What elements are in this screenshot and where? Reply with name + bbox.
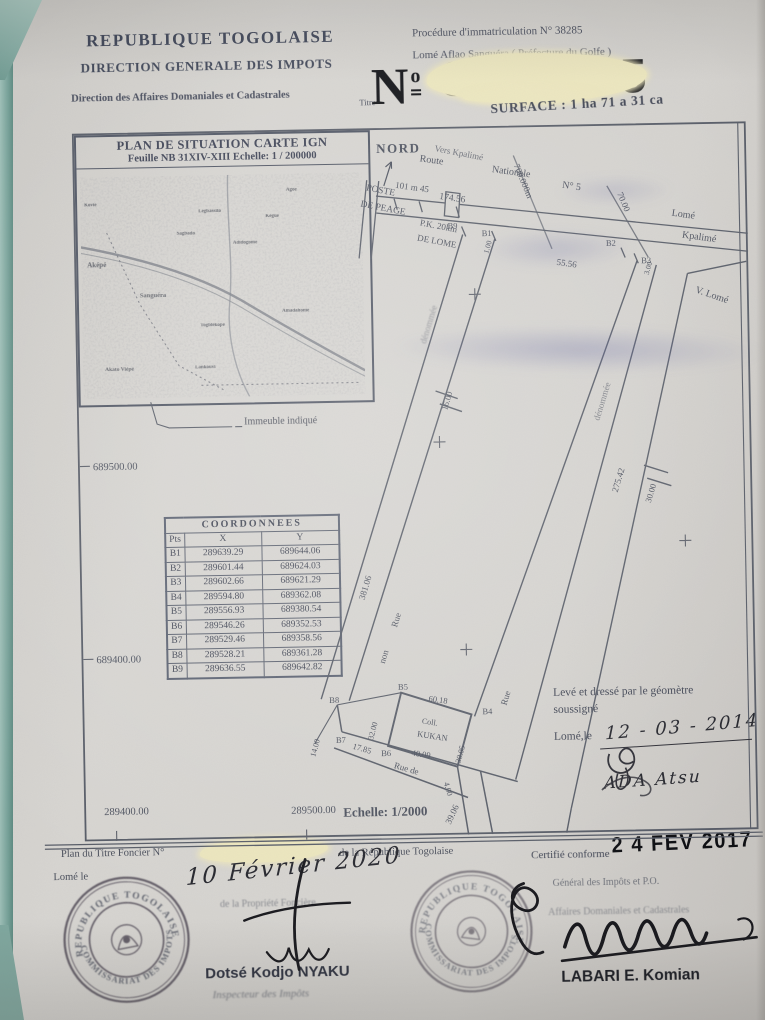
cell-y: 689642.82 <box>264 660 342 676</box>
inset-map-drawing <box>80 172 366 399</box>
dim-16-00: 16.00 <box>439 390 454 411</box>
signature-right <box>511 879 757 961</box>
cell-x: 289594.80 <box>185 589 262 605</box>
parcel-strip-lines <box>313 229 757 837</box>
title-inspecteur: Inspecteur des Impôts <box>213 987 310 1001</box>
place-label: Kégué <box>265 214 279 219</box>
cell-pt: B9 <box>168 663 187 678</box>
v-lome-label: V. Lomé <box>694 285 731 307</box>
cell-pt: B4 <box>166 591 185 606</box>
plan-titre-foncier-pre: Plan du Titre Foncier N° <box>61 847 165 861</box>
surveyor-name-handwritten: ADA Atsu <box>604 767 703 794</box>
cell-y: 689644.06 <box>262 544 340 560</box>
rue-left-label: Rue <box>389 612 403 629</box>
cell-y: 689352.53 <box>263 617 341 633</box>
dim-381-06: 381.06 <box>357 574 374 601</box>
stamp-ring-bottom-text: COMMISSARIAT DES IMPOTS <box>79 927 183 994</box>
cell-pt: B7 <box>167 634 186 649</box>
numero-n: N <box>370 58 409 116</box>
cell-y: 689358.56 <box>263 631 341 647</box>
place-label: Sagbado <box>177 231 195 236</box>
place-label: Togblékopé <box>200 323 225 328</box>
photo-shadow-edge-right <box>756 0 765 1020</box>
affaires-domaniales-footer-line: Affaires Domaniales et Cadastrales <box>548 904 689 918</box>
name-labari: LABARI E. Komian <box>561 966 700 986</box>
grid-east-289400: 289400.00 <box>104 806 149 818</box>
denommee-right-label: dénommée <box>592 381 613 422</box>
col-x: X <box>184 531 261 547</box>
cell-pt: B8 <box>167 649 186 664</box>
svg-text:COMMISSARIAT DES IMPOTS: COMMISSARIAT DES IMPOTS <box>418 922 519 983</box>
grid-north-689400: 689400.00 <box>96 654 141 666</box>
vers-kpalime-label: Vers Kpalimé <box>434 143 484 162</box>
place-label: Sanguéra <box>140 292 166 299</box>
certifie-conforme-label: Certifié conforme <box>531 848 610 862</box>
route-label: Route <box>419 153 445 167</box>
cell-y: 689361.28 <box>263 646 341 662</box>
rue-de-label: Rue de <box>393 760 420 777</box>
dg-impots-line: Général des Impôts et P.O. <box>553 876 660 889</box>
cell-pt: B6 <box>167 620 186 635</box>
place-label: Kovié <box>84 203 97 208</box>
pk-label-1: P.K. 20km <box>419 217 458 234</box>
cell-x: 289529.46 <box>186 633 263 649</box>
dim-174-56: 174.56 <box>439 192 467 206</box>
point-b4: B4 <box>482 706 493 716</box>
surveyor-line1: Levé et dressé par le géomètre <box>553 684 693 700</box>
cell-y: 689624.03 <box>262 559 340 575</box>
round-stamp-center: REPUBLIQUE TOGOLAISE COMMISSARIAT DES IM… <box>405 865 539 999</box>
inset-header: PLAN DE SITUATION CARTE IGN Feuille NB 3… <box>76 132 369 169</box>
dim-275-42: 275.42 <box>610 467 627 494</box>
route-nationale-lines <box>357 151 748 268</box>
point-b2: B2 <box>606 238 616 248</box>
point-b3: B3 <box>641 255 651 265</box>
blue-scan-smudge <box>387 323 765 375</box>
cell-x: 289546.26 <box>186 618 263 634</box>
inset-map-area: Aképé Sanguéra Sagbado Légbassito Adidog… <box>80 172 366 399</box>
situation-map-inset: PLAN DE SITUATION CARTE IGN Feuille NB 3… <box>74 130 375 407</box>
point-b9: B9 <box>447 221 457 231</box>
dim-70-00: 70.00 <box>615 191 632 214</box>
cell-x: 289639.29 <box>185 546 262 562</box>
surveyor-line2: soussigné <box>553 703 598 717</box>
stamp-ring-top-text: REPUBLIQUE TOGOLAISE <box>418 876 530 945</box>
place-label: Amadahomé <box>282 308 309 313</box>
direction-generale-line: DIRECTION GENERALE DES IMPOTS <box>80 57 332 77</box>
dim-4-00: 4.00 <box>442 781 455 797</box>
cell-x: 289602.66 <box>185 575 262 591</box>
dim-55-56: 55.56 <box>556 257 578 270</box>
place-label: Aképé <box>87 261 106 269</box>
grid-north-689500: 689500.00 <box>93 461 138 473</box>
stamp-ring-top-text: REPUBLIQUE TOGOLAISE <box>65 881 180 957</box>
col-pts: Pts <box>165 533 184 548</box>
pk-label-2: DE LOME <box>416 232 457 249</box>
procedure-line: Procédure d'immatriculation N° 38285 <box>412 24 583 40</box>
n5-label: N° 5 <box>561 180 581 193</box>
dim-60-18: 60.18 <box>428 693 448 706</box>
cell-pt: B1 <box>165 547 184 562</box>
place-label: Akato Viépé <box>105 367 134 374</box>
nationale-label: Nationale <box>491 164 532 180</box>
grid-east-289500: 289500.00 <box>291 805 336 817</box>
kukan-label: KUKAN <box>417 729 449 744</box>
cell-x: 289556.93 <box>186 604 263 620</box>
affaires-domaniales-line: Direction des Affaires Domaniales et Cad… <box>71 90 290 106</box>
legend-immeuble-indique: Immeuble indiqué <box>244 415 317 428</box>
footer-lome-le: Lomé le <box>53 871 88 884</box>
numero-symbol: No <box>370 57 421 118</box>
cell-y: 689362.08 <box>262 588 340 604</box>
date-stamp-24-fev-2017: 2 4 FEV 2017 <box>611 828 753 859</box>
dim-3-00: 3.00 <box>642 260 655 275</box>
scanned-land-title-page: REPUBLIQUE TOGOLAISE DIRECTION GENERALE … <box>0 0 765 1020</box>
dim-101m45: 101 m 45 <box>395 180 431 195</box>
cell-x: 289528.21 <box>186 647 263 663</box>
col-y: Y <box>261 530 339 546</box>
point-b8: B8 <box>329 695 339 705</box>
point-b1: B1 <box>482 228 492 238</box>
cell-pt: B3 <box>166 576 185 591</box>
dim-30-05: 30.05 <box>454 744 467 764</box>
cell-x: 289601.44 <box>185 560 262 576</box>
cell-y: 689621.29 <box>262 573 340 589</box>
point-b7: B7 <box>336 735 346 745</box>
dim-30-00: 30.00 <box>643 482 658 503</box>
dim-39-06: 39.06 <box>443 803 461 826</box>
name-nyaku: Dotsé Kodjo NYAKU <box>205 963 350 983</box>
coordinates-table: COORDONNEES Pts X Y B1289639.29689644.06… <box>164 514 343 680</box>
place-label: Agoè <box>286 188 297 193</box>
svg-text:COMMISSARIAT DES IMPOTS: COMMISSARIAT DES IMPOTS <box>79 927 183 994</box>
cell-y: 689380.54 <box>263 602 341 618</box>
place-label: Lankouvi <box>195 365 216 370</box>
dim-17-85: 17.85 <box>352 741 373 756</box>
lome-direction-label: Lomé <box>671 208 696 222</box>
surveyor-date-handwritten: 12 - 03 - 2014 <box>605 710 759 745</box>
cell-pt: B5 <box>166 605 185 620</box>
dim-32-00: 32.00 <box>366 721 379 741</box>
dim-700-000m: 700.000m <box>512 162 535 199</box>
blue-scan-smudge <box>476 227 637 270</box>
svg-text:REPUBLIQUE TOGOLAISE: REPUBLIQUE TOGOLAISE <box>418 876 530 945</box>
north-arrow-icon <box>383 162 391 186</box>
nord-label: NORD <box>376 140 421 156</box>
non-left-label: non <box>377 648 391 664</box>
cell-pt: B2 <box>166 562 185 577</box>
kpalime-direction-label: Kpalimé <box>681 230 717 246</box>
denommee-left-label: dénommée <box>418 304 439 345</box>
point-b6: B6 <box>381 748 391 758</box>
table-row: B9289636.55689642.82 <box>168 660 342 678</box>
place-label: Légbassito <box>198 209 221 214</box>
blue-scan-smudge <box>555 175 676 207</box>
dim-40-09: 40.09 <box>411 748 431 761</box>
svg-text:REPUBLIQUE TOGOLAISE: REPUBLIQUE TOGOLAISE <box>65 881 180 957</box>
stamp-ring-bottom-text: COMMISSARIAT DES IMPOTS <box>418 922 519 983</box>
point-b5: B5 <box>398 682 408 692</box>
dim-1-00: 1.00 <box>481 239 494 254</box>
cell-x: 289636.55 <box>187 662 264 678</box>
dim-14-00: 14.00 <box>309 738 322 758</box>
rue-right-label: Rue <box>499 690 513 707</box>
round-stamp-left: REPUBLIQUE TOGOLAISE COMMISSARIAT DES IM… <box>54 867 199 1012</box>
place-label: Adidogomé <box>233 240 258 245</box>
republic-title: REPUBLIQUE TOGOLAISE <box>86 27 334 51</box>
surveyor-lome-le: Lomé,le <box>554 730 592 744</box>
bottom-parcel-lines <box>314 691 519 838</box>
coll-label: Coll. <box>421 716 438 727</box>
echelle-label: Echelle: 1/2000 <box>343 803 427 820</box>
map-speckle-texture <box>80 172 366 399</box>
fonciere-line: de la Propriété Foncière <box>220 897 316 910</box>
photo-background-edge-left <box>0 0 13 1020</box>
document: REPUBLIQUE TOGOLAISE DIRECTION GENERALE … <box>0 0 765 1020</box>
numero-ordinal: o <box>410 65 421 95</box>
